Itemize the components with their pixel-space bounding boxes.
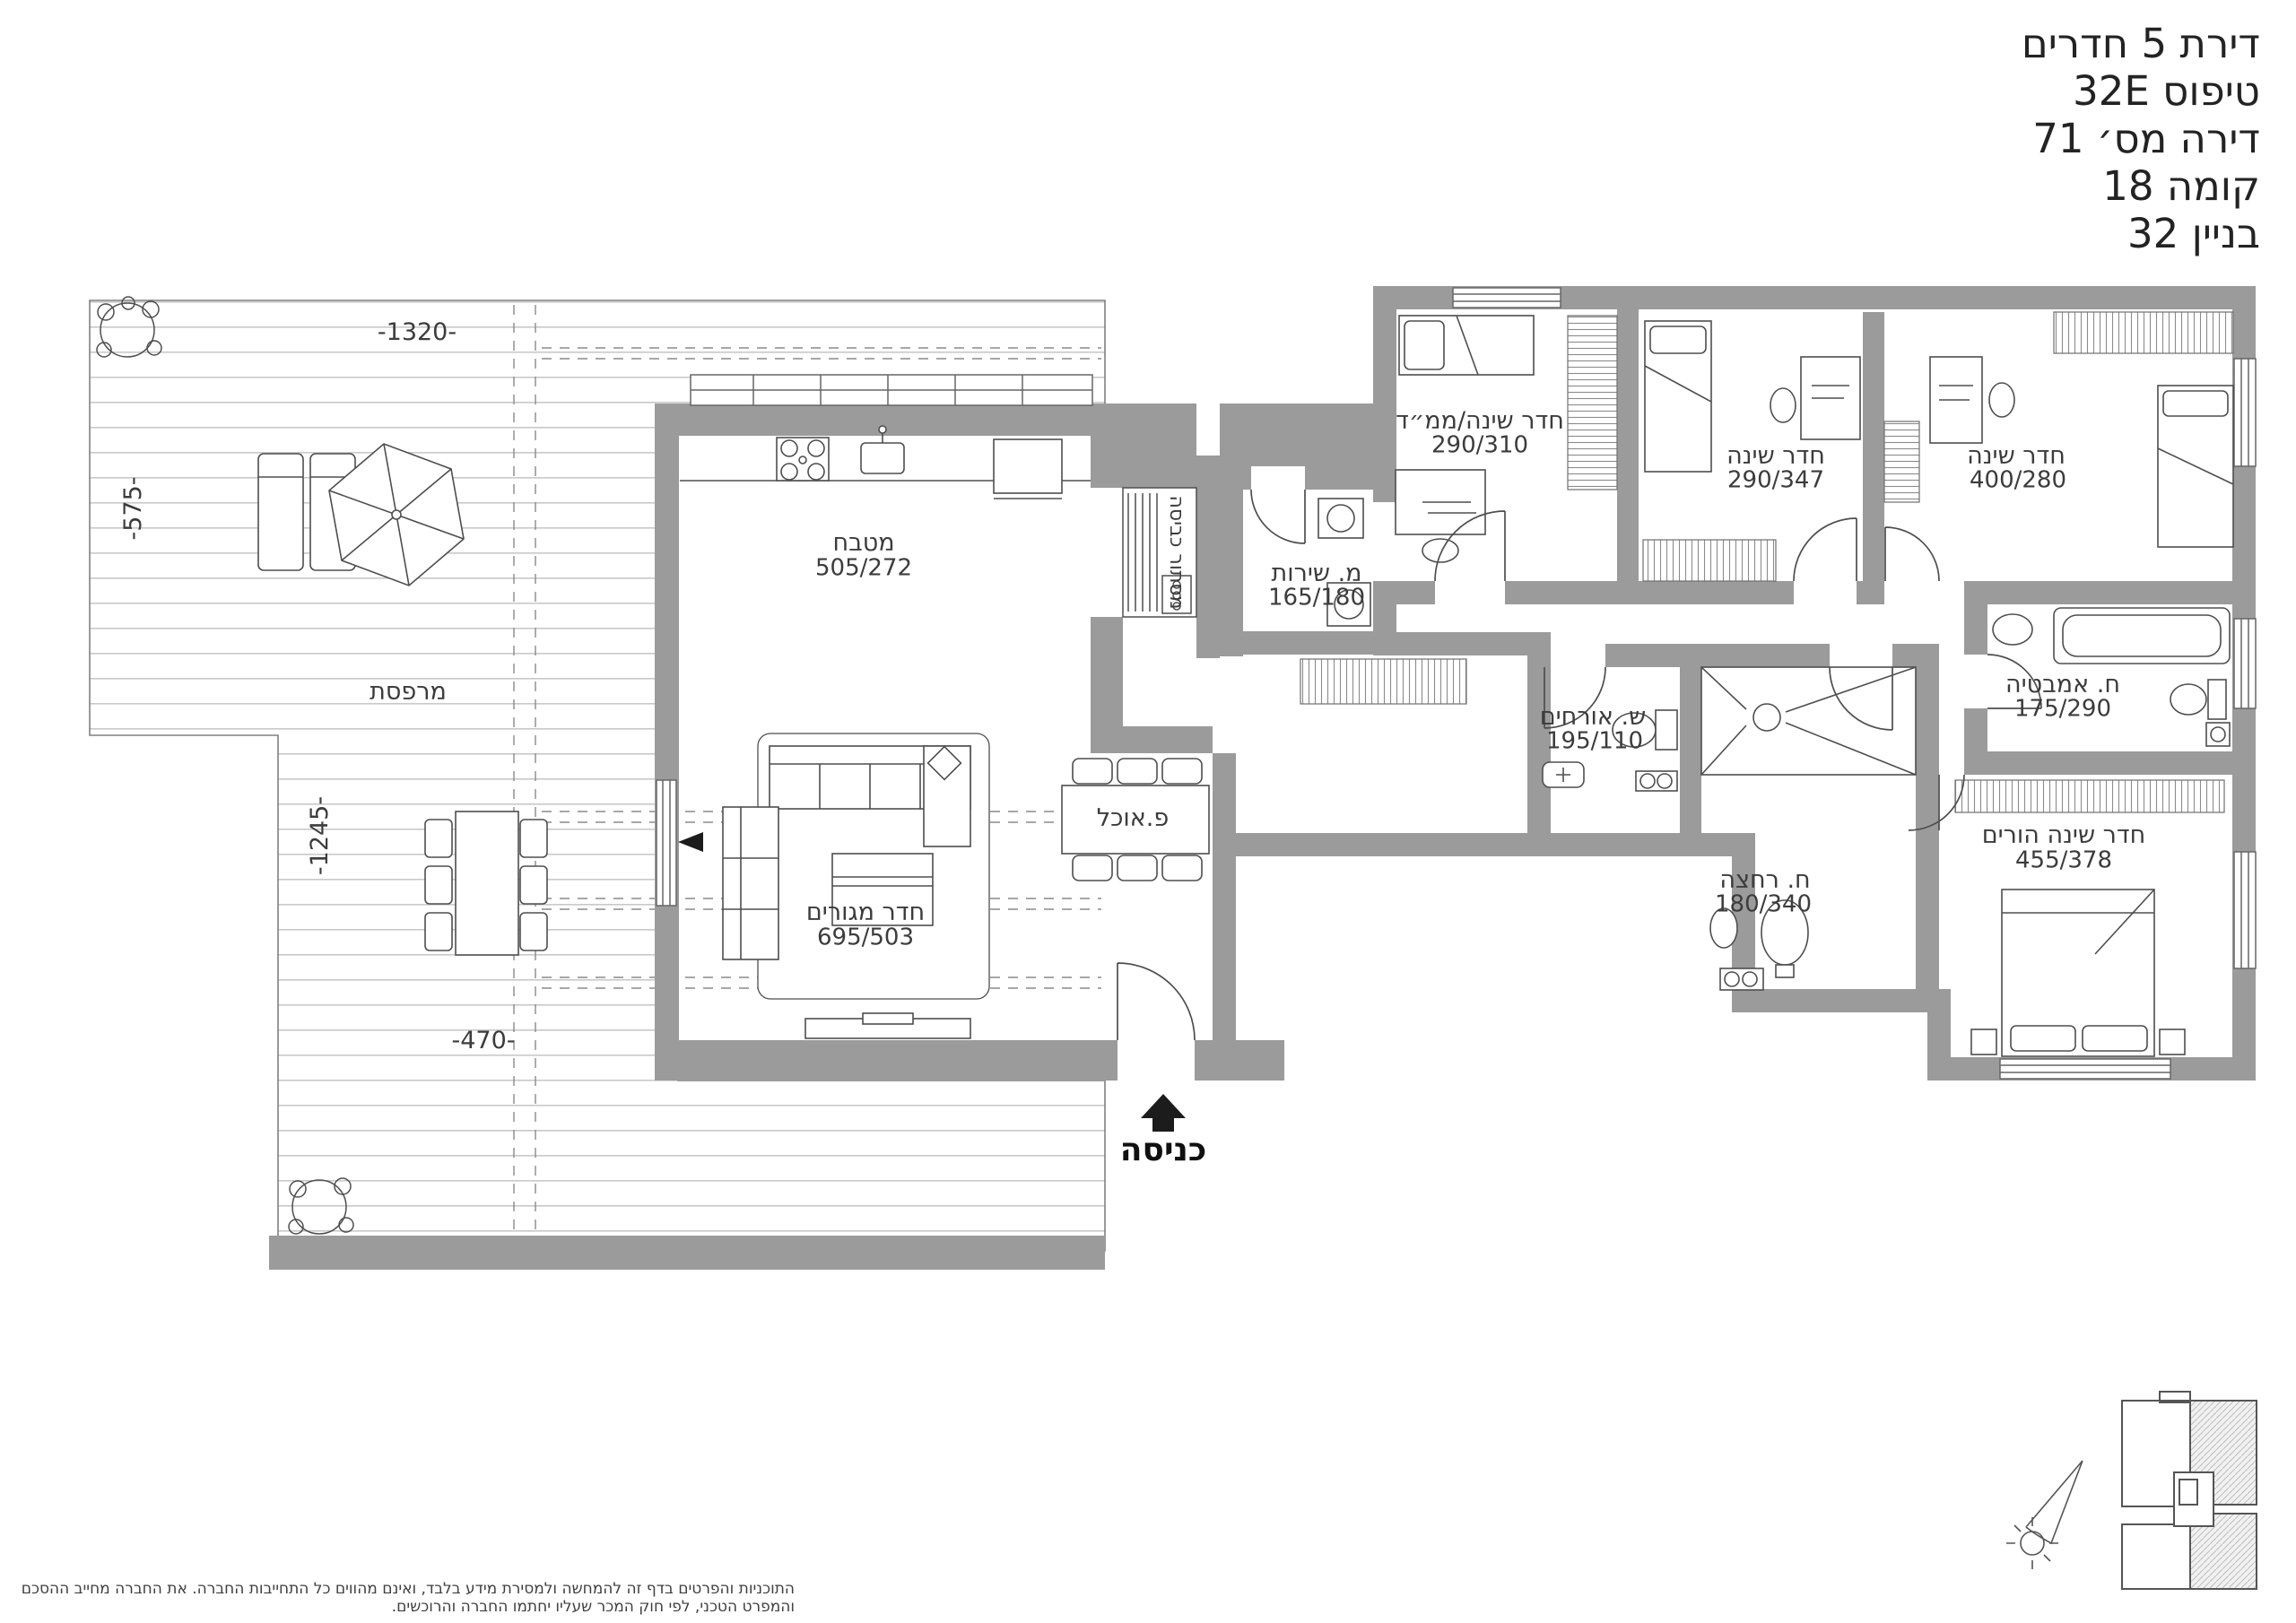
title-apartment-number: דירה מס׳ 71 (2022, 115, 2260, 162)
bedroom3-wardrobe-hatch (2054, 312, 2233, 353)
guest-wc-label: ש. אורחים (1540, 704, 1647, 731)
kitchen-window (691, 375, 1092, 405)
title-model: טיפוס 32E (2022, 67, 2260, 115)
mamad-wardrobe-hatch (1568, 316, 1617, 490)
master-bedroom-dims: 455/378 (2015, 848, 2112, 874)
cooktop-icon (777, 438, 829, 481)
north-compass-icon (2006, 1461, 2083, 1569)
master-bedroom-label: חדר שינה הורים (1982, 822, 2146, 849)
terrace-door-arrow-icon (678, 832, 703, 852)
kitchen-counter (680, 426, 1091, 499)
living-room-furniture (723, 733, 989, 1038)
bathtub-icon (2054, 608, 2230, 664)
service-wc-label: מ. שירות (1271, 560, 1361, 587)
bathroom-dims: 175/290 (2014, 697, 2111, 723)
entrance-arrow-icon (1141, 1094, 1186, 1132)
bedroom23-wardrobe-hatch (1884, 421, 1919, 502)
kitchen-label: מטבח (832, 530, 894, 557)
terrace-dim-left-upper: -575- (120, 476, 147, 540)
mamad-label: חדר שינה/ממ״ד (1396, 408, 1564, 435)
hall-closet-hatch (1300, 659, 1466, 704)
bedroom3-label: חדר שינה (1967, 443, 2066, 470)
bedroom2-label: חדר שינה (1726, 443, 1825, 470)
terrace-dim-top: -1320- (378, 319, 457, 346)
living-terrace-door (657, 780, 676, 906)
entrance-label: כניסה (1120, 1133, 1207, 1168)
terrace-dim-bottom: -470- (451, 1028, 515, 1055)
shower-room-label: ח. רחצה (1719, 867, 1810, 894)
living-room-dims: 695/503 (817, 925, 914, 951)
service-wc-dims: 165/180 (1268, 586, 1365, 612)
shower-stall-icon (1701, 667, 1916, 775)
master-bed-icon (1971, 890, 2185, 1056)
sink-icon (1993, 614, 2032, 645)
bedroom3-window (2234, 359, 2256, 466)
terrace-dim-left-lower: -1245- (307, 796, 334, 875)
key-plan (2122, 1392, 2257, 1589)
bedroom2-wardrobe-hatch (1643, 540, 1776, 581)
living-room-label: חדר מגורים (806, 899, 925, 926)
bathroom-label: ח. אמבטיה (2005, 672, 2120, 699)
master-bottom-window (2000, 1059, 2170, 1079)
toilet-icon (1656, 710, 1677, 750)
hall-opening (1371, 502, 1398, 581)
master-wardrobe-hatch (1955, 780, 2224, 812)
mamad-window (1453, 288, 1561, 308)
dining-label: פ.אוכל (1097, 805, 1169, 832)
disclaimer-text: התוכניות והפרטים בדף זה להמחשה ולמסירת מ… (14, 1580, 795, 1616)
floor-plan-page: דירת 5 חדרים טיפוס 32E דירה מס׳ 71 קומה … (0, 0, 2296, 1623)
bedroom3-dims: 400/280 (1970, 468, 2066, 494)
outdoor-table-icon (425, 811, 547, 955)
title-building: בניין 32 (2022, 210, 2260, 257)
mamad-dims: 290/310 (1431, 433, 1528, 459)
laundry-screen-label: מסתור כביסה (1165, 495, 1187, 609)
tv-unit-icon (805, 1013, 970, 1038)
title-block: דירת 5 חדרים טיפוס 32E דירה מס׳ 71 קומה … (2022, 20, 2260, 257)
bathroom-window (2234, 619, 2256, 708)
service-wc-door-arc (1251, 490, 1305, 543)
fridge-icon (994, 439, 1062, 499)
terrace-label: מרפסת (370, 679, 447, 706)
shower-room-dims: 180/340 (1715, 892, 1812, 918)
title-apartment-type: דירת 5 חדרים (2022, 20, 2260, 67)
bed-icon (1645, 321, 1711, 472)
title-floor: קומה 18 (2022, 162, 2260, 210)
bedroom2-dims: 290/347 (1727, 468, 1824, 494)
bed-icon (1399, 316, 1534, 375)
terrace-parapet-wall (269, 1236, 1105, 1270)
bed-icon (2158, 386, 2233, 547)
kitchen-dims: 505/272 (815, 556, 912, 582)
master-side-window (2234, 852, 2256, 968)
guest-wc-dims: 195/110 (1546, 729, 1643, 755)
entrance-door-arc (1118, 963, 1195, 1040)
